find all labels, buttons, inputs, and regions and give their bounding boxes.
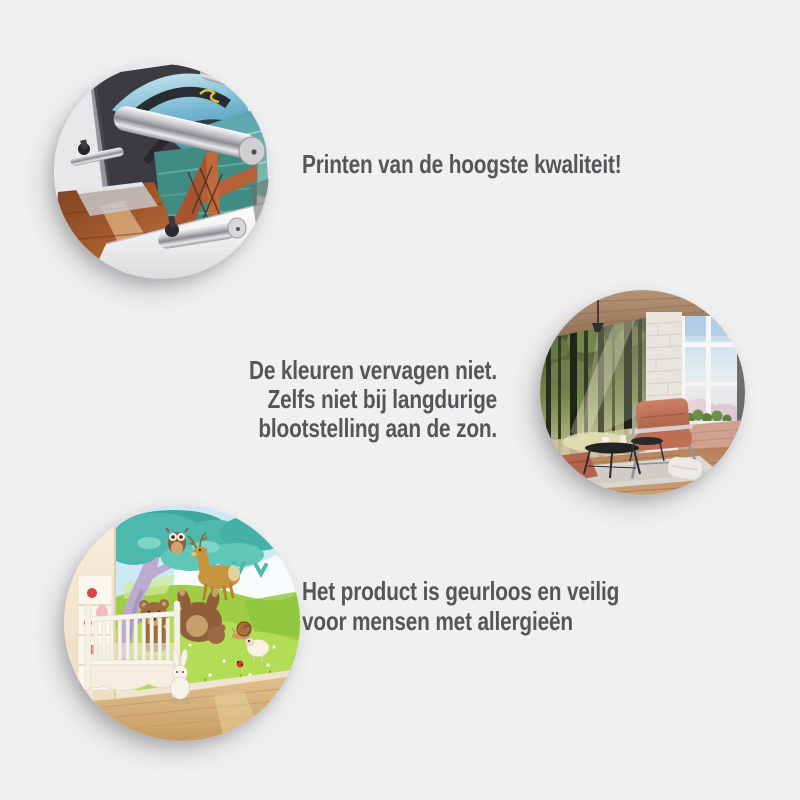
printer-photo bbox=[54, 64, 269, 279]
nursery-photo-illustration bbox=[64, 505, 300, 741]
benefit-text-odorless-safe: Het product is geurloos en veilig voor m… bbox=[302, 576, 619, 636]
product-benefits-section: Printen van de hoogste kwaliteit! bbox=[0, 0, 800, 800]
printer-photo-illustration bbox=[54, 64, 269, 279]
benefit-line: Printen van de hoogste kwaliteit! bbox=[302, 149, 621, 179]
benefit-line: voor mensen met allergieën bbox=[302, 606, 619, 636]
benefit-line: Het product is geurloos en veilig bbox=[302, 576, 619, 606]
benefit-text-no-fading: De kleuren vervagen niet. Zelfs niet bij… bbox=[249, 356, 497, 443]
nursery-photo bbox=[64, 505, 300, 741]
benefit-line: Zelfs niet bij langdurige bbox=[249, 385, 497, 414]
interior-photo bbox=[540, 290, 745, 495]
benefit-line: blootstelling aan de zon. bbox=[249, 414, 497, 443]
benefit-line: De kleuren vervagen niet. bbox=[249, 356, 497, 385]
benefit-text-print-quality: Printen van de hoogste kwaliteit! bbox=[302, 149, 621, 179]
interior-photo-illustration bbox=[540, 290, 745, 495]
